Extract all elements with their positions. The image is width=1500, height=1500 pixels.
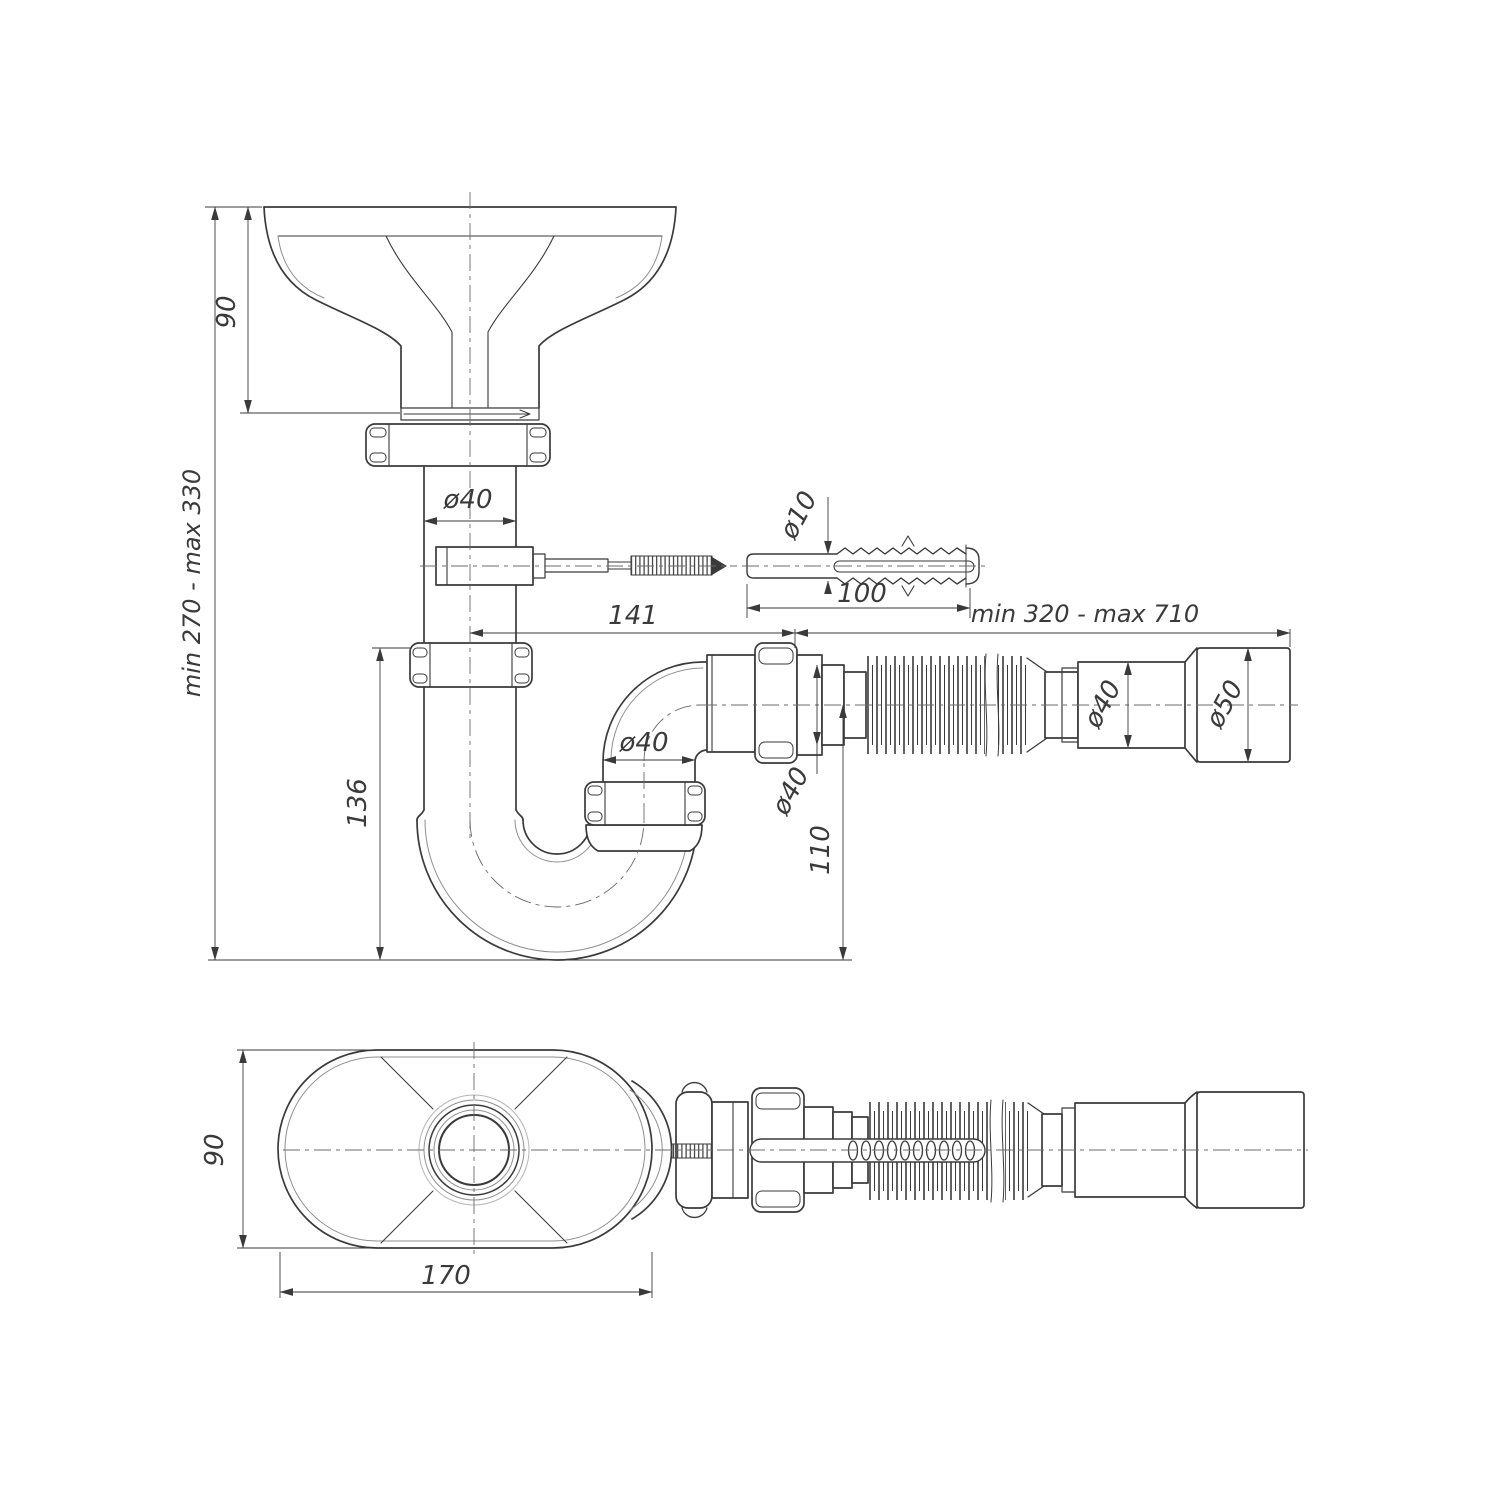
oval-body — [278, 1050, 652, 1248]
dim-plug-diameter: ø10 — [774, 487, 824, 545]
dim-body-width: 90 — [200, 1133, 230, 1166]
dim-funnel-height: 90 — [212, 295, 242, 328]
union-nut-top — [366, 424, 550, 466]
bottom-view — [278, 1050, 1304, 1248]
union-nut-trap-inlet — [410, 643, 532, 687]
dim-overall-height: min 270 - max 330 — [178, 469, 206, 697]
dim-outlet-spigot-diameter: ø40 — [766, 763, 816, 821]
mounting-strap — [750, 1139, 985, 1162]
siphon-technical-drawing: 90 min 270 - max 330 136 ø40 ø10 100 141… — [0, 0, 1500, 1500]
dim-trap-height: 136 — [343, 778, 373, 828]
dim-pipe-diameter: ø40 — [443, 485, 493, 515]
dim-plug-length: 100 — [837, 579, 887, 609]
dim-flex-length-range: min 320 - max 710 — [971, 600, 1199, 628]
dim-body-length: 170 — [421, 1261, 471, 1291]
front-view — [264, 207, 1290, 960]
dim-offset-length: 141 — [608, 601, 658, 631]
union-nut-trap-outlet — [585, 782, 705, 851]
dim-outlet-axis-height: 110 — [806, 825, 836, 875]
drawing-page: 90 min 270 - max 330 136 ø40 ø10 100 141… — [0, 0, 1500, 1500]
outlet-elbow — [603, 655, 755, 783]
dim-elbow-diameter: ø40 — [619, 728, 669, 758]
union-nut-outlet — [755, 643, 797, 763]
